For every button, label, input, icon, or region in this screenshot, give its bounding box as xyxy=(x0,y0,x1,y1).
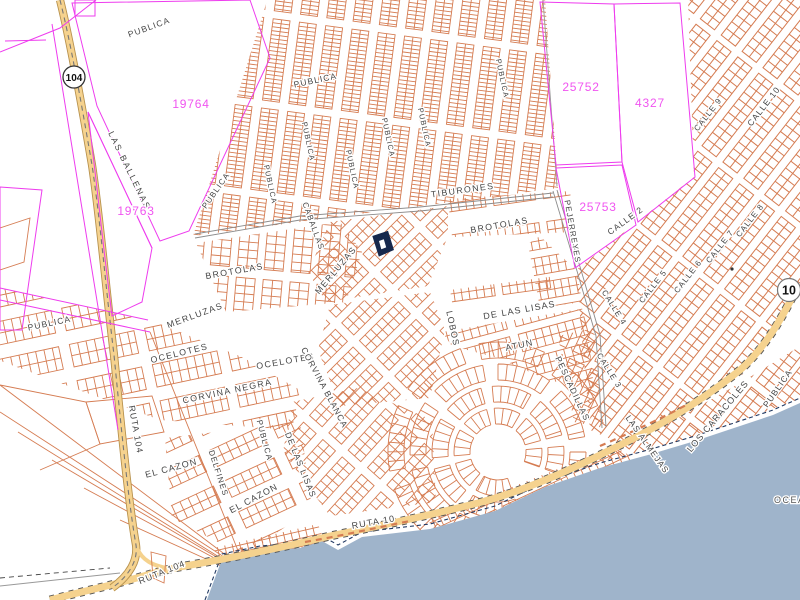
svg-text:4327: 4327 xyxy=(635,96,665,110)
svg-text:25752: 25752 xyxy=(562,80,599,94)
svg-text:19763: 19763 xyxy=(117,204,154,218)
svg-text:10: 10 xyxy=(782,284,796,298)
svg-text:25753: 25753 xyxy=(579,200,616,214)
svg-text:OCEANO: OCEANO xyxy=(774,495,800,505)
svg-text:104: 104 xyxy=(66,73,83,84)
svg-text:19764: 19764 xyxy=(172,97,209,111)
